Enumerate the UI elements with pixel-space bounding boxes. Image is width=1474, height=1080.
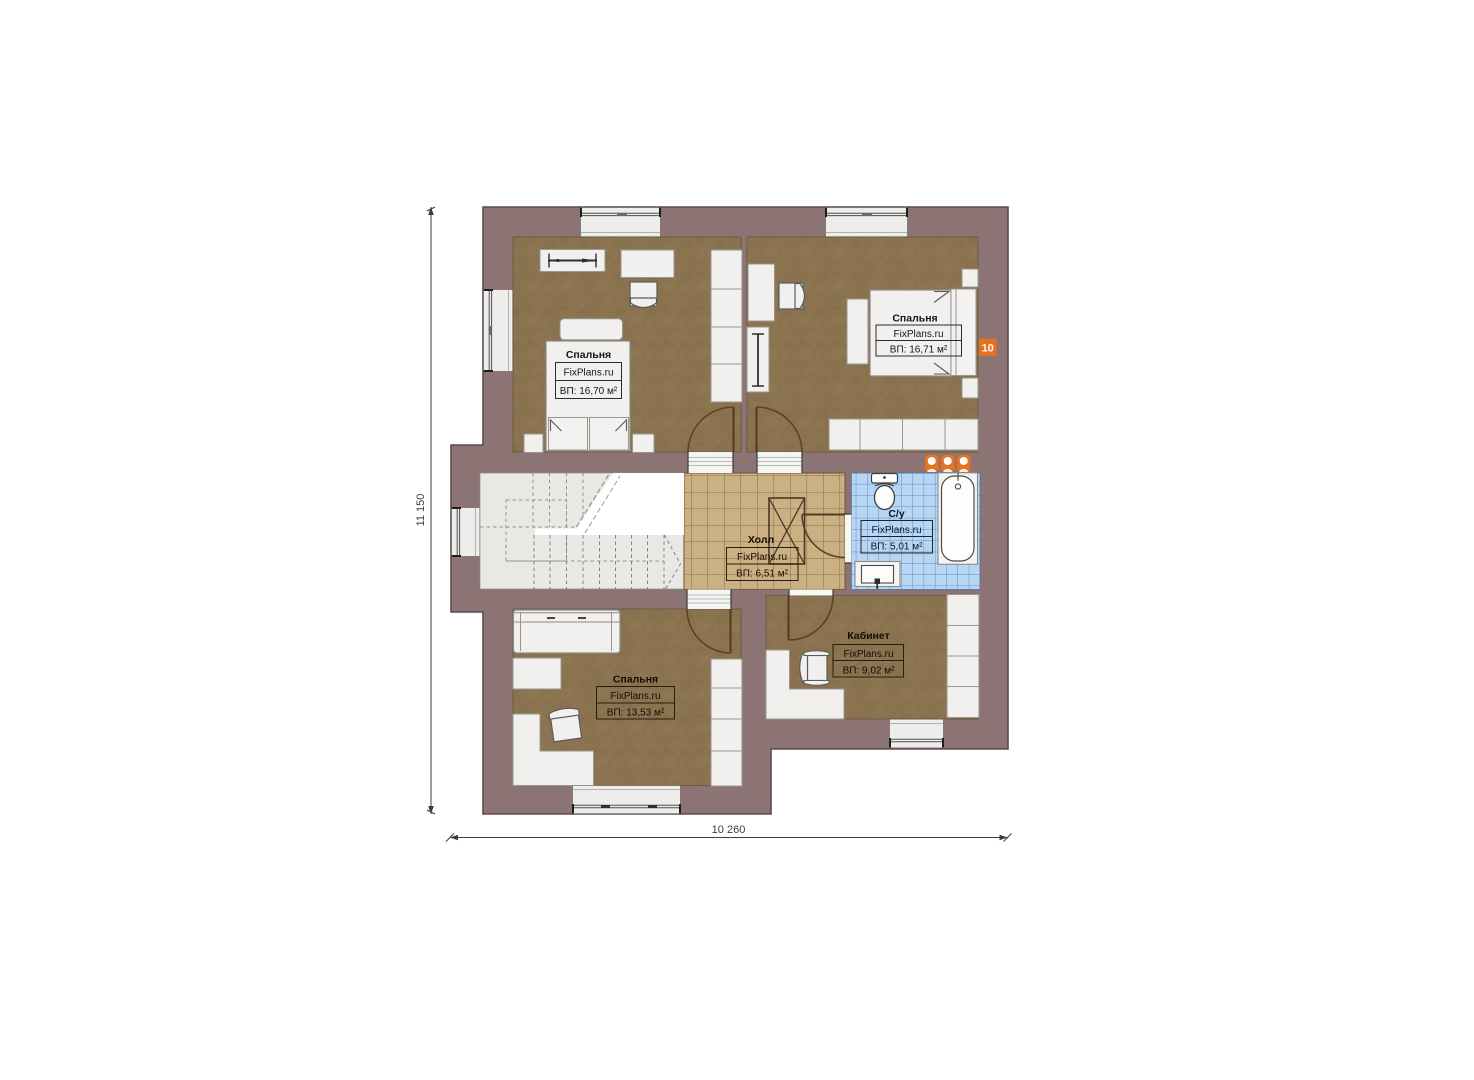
svg-text:10: 10 xyxy=(982,342,994,354)
svg-text:ВП: 9,02 м²: ВП: 9,02 м² xyxy=(843,666,896,677)
svg-text:Кабинет: Кабинет xyxy=(847,630,890,642)
svg-text:ВП: 13,53 м²: ВП: 13,53 м² xyxy=(607,708,665,719)
svg-text:FixPlans.ru: FixPlans.ru xyxy=(737,552,787,563)
svg-text:Спальня: Спальня xyxy=(892,313,937,325)
svg-text:ВП: 6,51 м²: ВП: 6,51 м² xyxy=(736,569,789,580)
svg-text:10 260: 10 260 xyxy=(712,824,746,836)
svg-text:FixPlans.ru: FixPlans.ru xyxy=(563,368,613,379)
svg-text:11 150: 11 150 xyxy=(415,494,427,527)
svg-text:ВП: 16,70 м²: ВП: 16,70 м² xyxy=(560,386,618,397)
svg-text:FixPlans.ru: FixPlans.ru xyxy=(610,691,660,702)
svg-text:Спальня: Спальня xyxy=(613,674,658,686)
svg-text:Холл: Холл xyxy=(748,534,774,546)
svg-text:FixPlans.ru: FixPlans.ru xyxy=(843,649,893,660)
svg-text:FixPlans.ru: FixPlans.ru xyxy=(893,329,943,340)
svg-text:FixPlans.ru: FixPlans.ru xyxy=(871,525,921,536)
svg-text:Спальня: Спальня xyxy=(566,349,611,361)
svg-text:ВП: 5,01 м²: ВП: 5,01 м² xyxy=(871,542,924,553)
svg-text:ВП: 16,71 м²: ВП: 16,71 м² xyxy=(890,345,948,356)
svg-text:С/у: С/у xyxy=(888,508,905,520)
